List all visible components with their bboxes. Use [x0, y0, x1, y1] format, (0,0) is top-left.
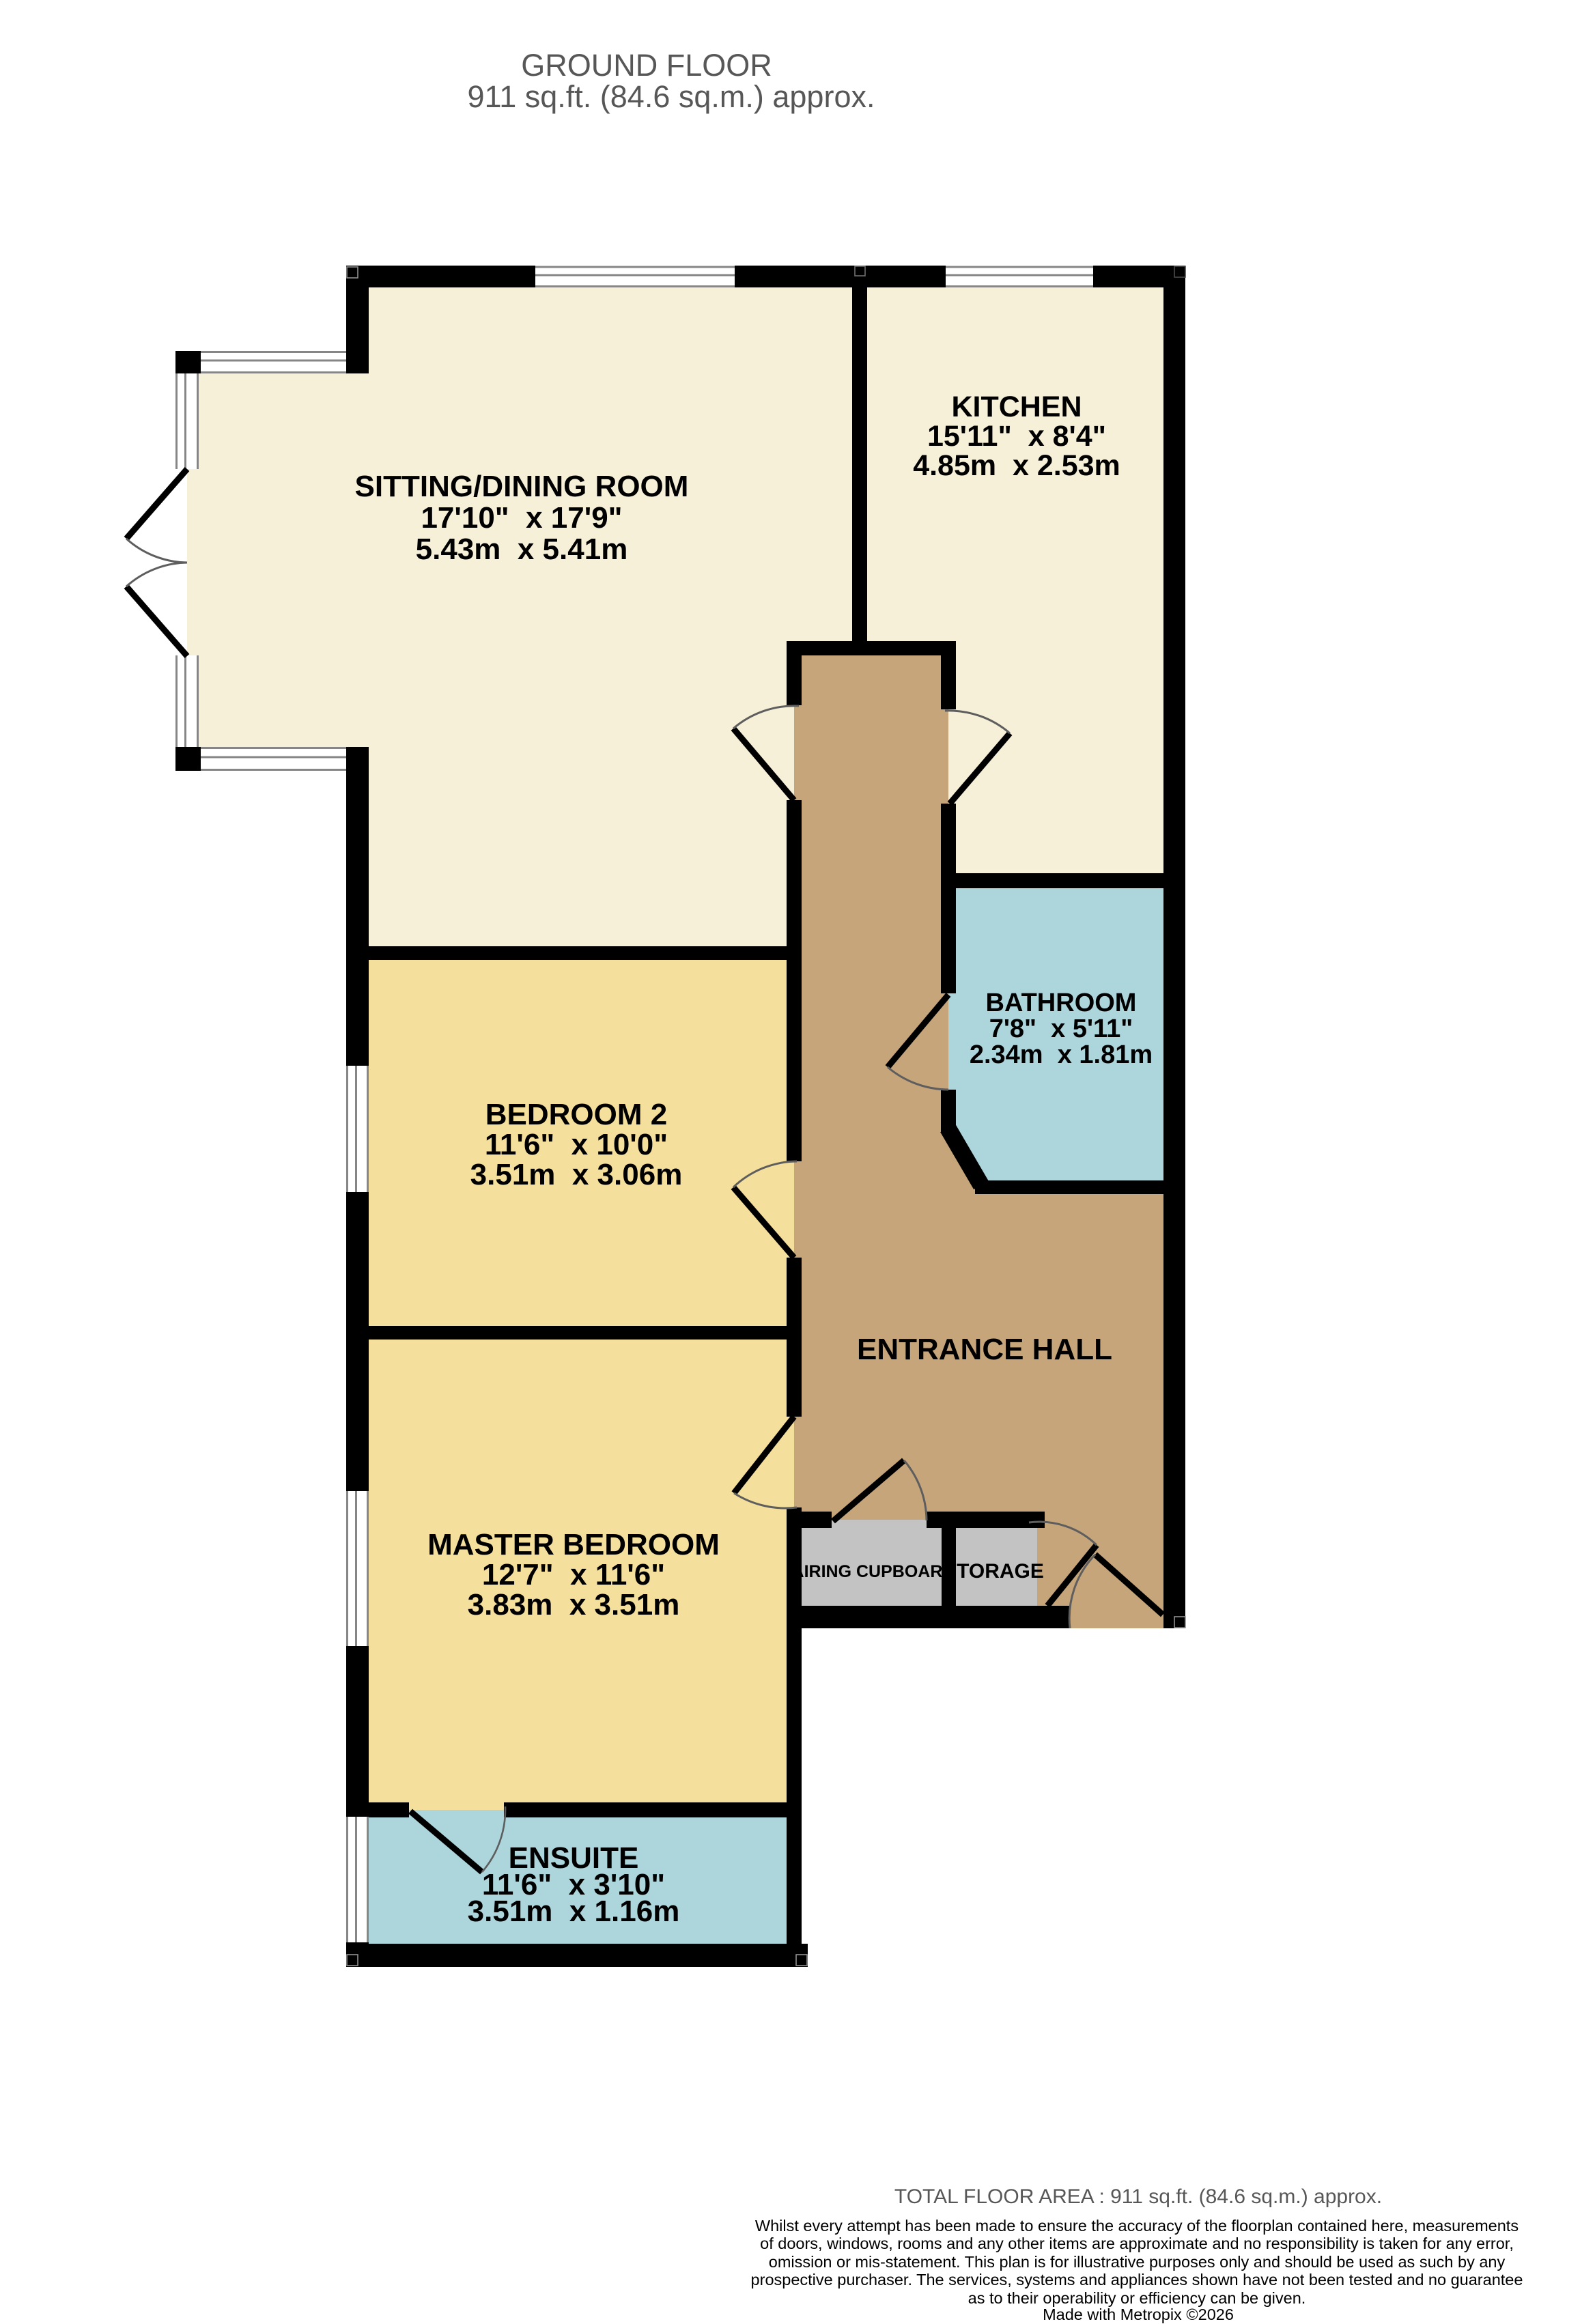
svg-text:3.83m x 3.51m: 3.83m x 3.51m [468, 1588, 680, 1621]
svg-text:AIRING CUPBOARD: AIRING CUPBOARD [792, 1562, 955, 1581]
svg-text:ENTRANCE HALL: ENTRANCE HALL [857, 1333, 1112, 1366]
svg-text:7'8" x 5'11": 7'8" x 5'11" [989, 1015, 1133, 1043]
svg-text:12'7" x 11'6": 12'7" x 11'6" [482, 1558, 665, 1591]
svg-text:prospective purchaser. The ser: prospective purchaser. The services, sys… [751, 2271, 1523, 2288]
svg-text:MASTER BEDROOM: MASTER BEDROOM [427, 1528, 720, 1561]
svg-text:911 sq.ft. (84.6 sq.m.) approx: 911 sq.ft. (84.6 sq.m.) approx. [468, 79, 875, 114]
svg-text:BEDROOM 2: BEDROOM 2 [485, 1098, 667, 1131]
svg-text:4.85m x 2.53m: 4.85m x 2.53m [913, 449, 1120, 482]
svg-text:KITCHEN: KITCHEN [951, 391, 1082, 423]
svg-text:omission or mis-statement. Thi: omission or mis-statement. This plan is … [769, 2253, 1506, 2271]
svg-text:Whilst every attempt has been: Whilst every attempt has been made to en… [755, 2217, 1519, 2235]
svg-text:Made with Metropix ©2026: Made with Metropix ©2026 [1043, 2306, 1234, 2323]
svg-text:BATHROOM: BATHROOM [986, 989, 1137, 1017]
svg-text:as to their operability or eff: as to their operability or efficiency ca… [968, 2289, 1306, 2307]
svg-text:11'6" x 10'0": 11'6" x 10'0" [485, 1128, 668, 1161]
svg-text:TOTAL FLOOR AREA : 911 sq.ft.: TOTAL FLOOR AREA : 911 sq.ft. (84.6 sq.m… [894, 2185, 1382, 2208]
svg-text:of doors, windows, rooms and a: of doors, windows, rooms and any other i… [760, 2235, 1514, 2252]
svg-text:3.51m x 3.06m: 3.51m x 3.06m [470, 1158, 683, 1191]
svg-text:15'11" x 8'4": 15'11" x 8'4" [927, 420, 1106, 453]
svg-text:SITTING/DINING ROOM: SITTING/DINING ROOM [355, 470, 689, 503]
svg-text:5.43m x 5.41m: 5.43m x 5.41m [416, 533, 628, 566]
svg-text:GROUND FLOOR: GROUND FLOOR [521, 48, 772, 83]
svg-text:2.34m x 1.81m: 2.34m x 1.81m [970, 1040, 1153, 1069]
svg-text:17'10" x 17'9": 17'10" x 17'9" [421, 501, 622, 535]
svg-text:3.51m x 1.16m: 3.51m x 1.16m [468, 1895, 680, 1928]
svg-text:STORAGE: STORAGE [943, 1560, 1044, 1583]
